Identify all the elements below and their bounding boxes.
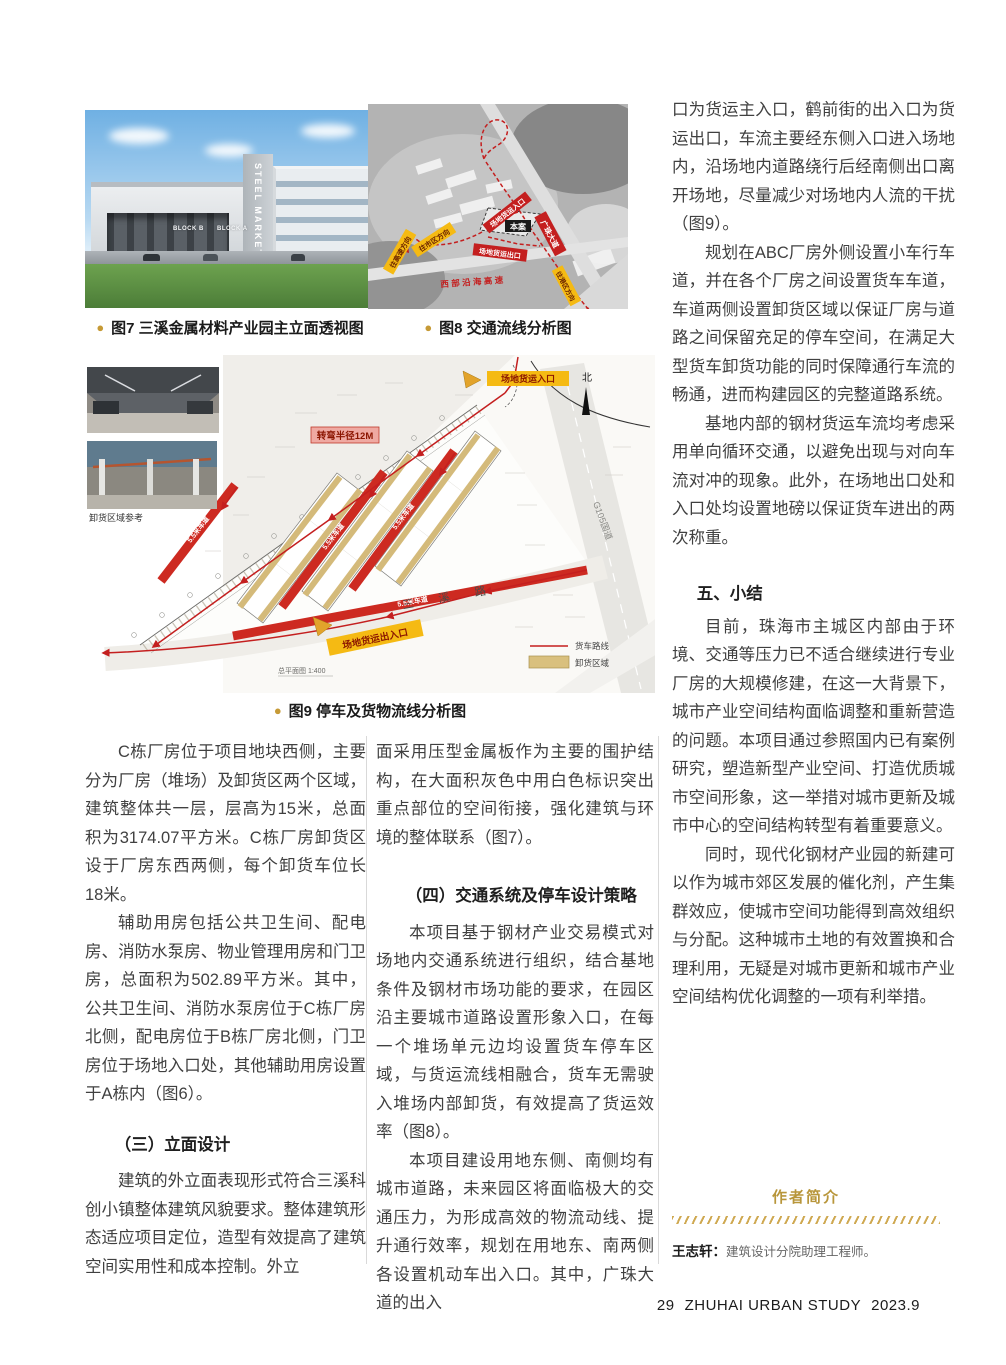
svg-text:北: 北: [582, 372, 592, 384]
journal-page: STEEL MARKET BLOCK B BLOCK A ● 图7 三溪金属材料…: [0, 0, 1006, 1365]
left-column: C栋厂房位于项目地块西侧，主要分为厂房（堆场）及卸货区两个区域，建筑整体共一层，…: [85, 738, 366, 1281]
figure9-caption: ● 图9 停车及货物流线分析图: [85, 700, 655, 721]
paragraph: 基地内部的钢材货运车流均考虑采用单向循环交通，以避免出现与对向车流对冲的现象。此…: [672, 410, 955, 553]
cloud-shape: [109, 128, 169, 144]
scale-note: 总平面图 1:400: [278, 666, 326, 675]
paragraph: 辅助用房包括公共卫生间、配电房、消防水泵房、物业管理用房和门卫房，总面积为502…: [85, 909, 366, 1109]
photos-caption: 卸货区域参考: [89, 512, 143, 523]
car-shape: [143, 254, 160, 261]
column-divider: [366, 736, 367, 1264]
svg-text:本案: 本案: [509, 222, 527, 232]
cloud-shape: [301, 124, 355, 138]
block-b-label: BLOCK B: [173, 226, 204, 232]
hatch-divider: [672, 1216, 940, 1224]
legend-route-label: 货车路线: [575, 641, 610, 651]
figure7-rendering: STEEL MARKET BLOCK B BLOCK A: [85, 110, 375, 308]
author-name: 王志轩：: [672, 1244, 726, 1259]
author-bio-line: 王志轩：建筑设计分院助理工程师。: [672, 1240, 940, 1260]
figure9-site-plan: G105国道: [85, 355, 655, 693]
sign-tower: STEEL MARKET: [243, 154, 273, 266]
car-shape: [291, 254, 305, 261]
author-profile: 作者简介 王志轩：建筑设计分院助理工程师。: [672, 1186, 940, 1260]
steel-market-sign: STEEL MARKET: [253, 163, 263, 257]
car-shape: [203, 254, 218, 261]
paragraph: 本项目建设用地东侧、南侧均有城市道路，未来园区将面临极大的交通压力，为形成高效的…: [376, 1147, 654, 1318]
section-heading: 五、小结: [672, 580, 955, 609]
paragraph: 同时，现代化钢材产业园的新建可以作为城市郊区发展的催化剂，产生集群效应，使城市空…: [672, 841, 955, 1012]
road: [85, 251, 375, 264]
paragraph: 建筑的外立面表现形式符合三溪科创小镇整体建筑风貌要求。整体建筑形态适应项目定位，…: [85, 1167, 366, 1281]
paragraph: 口为货运主入口，鹤前街的出入口为货运出口，车流主要经东侧入口进入场地内，沿场地内…: [672, 96, 955, 239]
figure7-caption: ● 图7 三溪金属材料产业园主立面透视图: [85, 317, 375, 338]
paragraph: 面采用压型金属板作为主要的围护结构，在大面积灰色中用白色标识突出重点部位的空间衔…: [376, 738, 654, 852]
journal-title: ZHUHAI URBAN STUDY: [685, 1297, 862, 1314]
figure-bullet-icon: ●: [96, 321, 104, 334]
figure-bullet-icon: ●: [424, 321, 432, 334]
issue-date: 2023.9: [871, 1297, 920, 1314]
paragraph: 本项目基于钢材产业交易模式对场地内交通系统进行组织，结合基地条件及钢材市场功能的…: [376, 919, 654, 1147]
freight-entrance-label: 场地货运入口: [487, 371, 569, 386]
reference-photo-2: [87, 441, 217, 509]
author-heading: 作者简介: [672, 1186, 940, 1207]
figure8-traffic-map: 场地货运入口 本案 广珠大道 往市区方向 往高速方向 场地货运出口 西 部 沿 …: [368, 104, 628, 309]
block-a-label: BLOCK A: [217, 226, 248, 232]
section-heading: （四）交通系统及停车设计策略: [376, 882, 654, 911]
page-footer: 29ZHUHAI URBAN STUDY2023.9: [657, 1297, 920, 1314]
paragraph: C栋厂房位于项目地块西侧，主要分为厂房（堆场）及卸货区两个区域，建筑整体共一层，…: [85, 738, 366, 909]
turning-radius-label: 转弯半径12M: [311, 427, 379, 443]
figure8-caption: ● 图8 交通流线分析图: [368, 317, 628, 338]
legend-unloading-swatch: [529, 656, 569, 668]
svg-text:转弯半径12M: 转弯半径12M: [317, 430, 374, 442]
paragraph: 目前，珠海市主城区内部由于环境、交通等压力已不适合继续进行专业厂房的大规模修建，…: [672, 613, 955, 841]
svg-text:场地货运入口: 场地货运入口: [501, 373, 555, 384]
right-column: 口为货运主入口，鹤前街的出入口为货运出口，车流主要经东侧入口进入场地内，沿场地内…: [672, 96, 955, 1012]
figure-bullet-icon: ●: [274, 704, 282, 717]
section-heading: （三）立面设计: [85, 1131, 366, 1160]
page-number: 29: [657, 1297, 675, 1314]
middle-column: 面采用压型金属板作为主要的围护结构，在大面积灰色中用白色标识突出重点部位的空间衔…: [376, 738, 654, 1318]
site-label: 本案: [505, 220, 531, 232]
paragraph: 规划在ABC厂房外侧设置小车行车道，并在各个厂房之间设置货车车道，车道两侧设置卸…: [672, 239, 955, 410]
legend-unloading-label: 卸货区域: [575, 658, 610, 668]
author-bio: 建筑设计分院助理工程师。: [726, 1245, 876, 1259]
column-divider: [658, 736, 659, 1264]
grass: [85, 264, 375, 308]
reference-photo-1: [87, 367, 219, 433]
